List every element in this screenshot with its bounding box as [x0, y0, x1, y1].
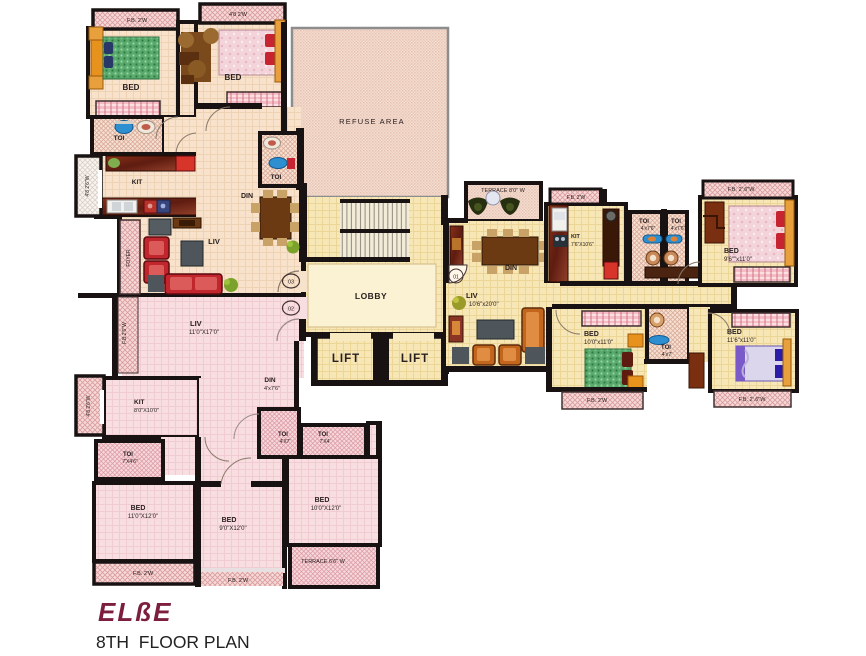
svg-text:TOI: TOI — [318, 432, 328, 438]
svg-text:4'8 2'W: 4'8 2'W — [229, 12, 248, 18]
svg-text:LIFT: LIFT — [332, 353, 360, 365]
svg-text:DIN: DIN — [505, 265, 517, 272]
svg-text:F.B. 2'.6"W: F.B. 2'.6"W — [728, 187, 756, 193]
svg-text:TOI: TOI — [271, 174, 282, 181]
svg-text:LIV: LIV — [190, 319, 202, 328]
svg-text:4'X7': 4'X7' — [280, 439, 291, 445]
svg-text:4'8 2'6"W: 4'8 2'6"W — [86, 395, 92, 416]
svg-text:F.B. 2'.6"W: F.B. 2'.6"W — [739, 397, 767, 403]
svg-text:F.B. 2'W: F.B. 2'W — [567, 195, 586, 201]
svg-text:02: 02 — [288, 307, 294, 313]
svg-text:BED: BED — [584, 331, 599, 338]
svg-text:TOI: TOI — [123, 452, 133, 458]
svg-text:TOI: TOI — [639, 219, 649, 225]
svg-text:TERRACE 6'6" W: TERRACE 6'6" W — [301, 559, 345, 565]
svg-text:11'6"x11'0": 11'6"x11'0" — [727, 338, 756, 344]
svg-text:LIFT: LIFT — [401, 353, 429, 365]
svg-text:TOI: TOI — [671, 219, 681, 225]
svg-text:8'0"X10'0": 8'0"X10'0" — [134, 408, 159, 414]
svg-text:F.B.2'6"W: F.B.2'6"W — [122, 322, 128, 344]
svg-text:TOI: TOI — [278, 432, 288, 438]
svg-text:FOYER: FOYER — [126, 249, 132, 267]
svg-text:LIV: LIV — [466, 291, 478, 300]
svg-text:F.B. 2'W: F.B. 2'W — [133, 571, 154, 577]
svg-text:10'6"x20'0": 10'6"x20'0" — [469, 302, 499, 308]
svg-text:BED: BED — [131, 505, 146, 512]
svg-text:03: 03 — [288, 280, 294, 286]
svg-text:KIT: KIT — [132, 179, 143, 186]
svg-text:F.B. 2'W: F.B. 2'W — [587, 398, 608, 404]
svg-text:LOBBY: LOBBY — [355, 291, 387, 301]
svg-text:10'0"x11'0": 10'0"x11'0" — [584, 340, 613, 346]
svg-text:10'0"X12'0": 10'0"X12'0" — [311, 506, 342, 512]
svg-text:4'x7'6": 4'x7'6" — [264, 386, 280, 392]
svg-text:DIN: DIN — [264, 377, 276, 384]
svg-text:7'6"X10'6": 7'6"X10'6" — [571, 242, 594, 248]
svg-text:TOI: TOI — [661, 345, 671, 351]
svg-text:TOI: TOI — [114, 135, 125, 142]
svg-text:9'0"X12'0": 9'0"X12'0" — [219, 526, 246, 532]
svg-text:BED: BED — [225, 73, 242, 82]
svg-text:11'0"X12'0": 11'0"X12'0" — [128, 514, 158, 520]
svg-text:KIT: KIT — [571, 234, 581, 240]
svg-text:8TH FLOOR PLAN: 8TH FLOOR PLAN — [96, 632, 250, 652]
svg-text:BED: BED — [315, 497, 330, 504]
svg-text:4'x7'6": 4'x7'6" — [641, 226, 656, 232]
svg-text:7'X4': 7'X4' — [320, 439, 331, 445]
svg-text:DIN: DIN — [241, 193, 253, 200]
svg-text:01: 01 — [453, 275, 459, 281]
svg-text:ELßE: ELßE — [98, 597, 172, 627]
svg-text:11'0"X17'0": 11'0"X17'0" — [189, 330, 219, 336]
svg-text:REFUSE AREA: REFUSE AREA — [339, 117, 405, 126]
svg-text:BED: BED — [724, 248, 739, 255]
svg-text:BED: BED — [222, 517, 237, 524]
svg-text:7'X4'6": 7'X4'6" — [122, 459, 138, 465]
svg-text:4'x7': 4'x7' — [662, 352, 673, 358]
svg-text:F.B. 2'W: F.B. 2'W — [127, 18, 148, 24]
svg-text:9'6""x11'0": 9'6""x11'0" — [724, 257, 752, 263]
svg-text:4'8 2'6"W: 4'8 2'6"W — [85, 175, 91, 196]
svg-text:LIV: LIV — [208, 237, 220, 246]
svg-text:BED: BED — [123, 83, 140, 92]
svg-text:4'x7'6": 4'x7'6" — [671, 226, 686, 232]
svg-text:F.B. 2'W: F.B. 2'W — [228, 578, 249, 584]
svg-text:KIT: KIT — [134, 399, 145, 406]
